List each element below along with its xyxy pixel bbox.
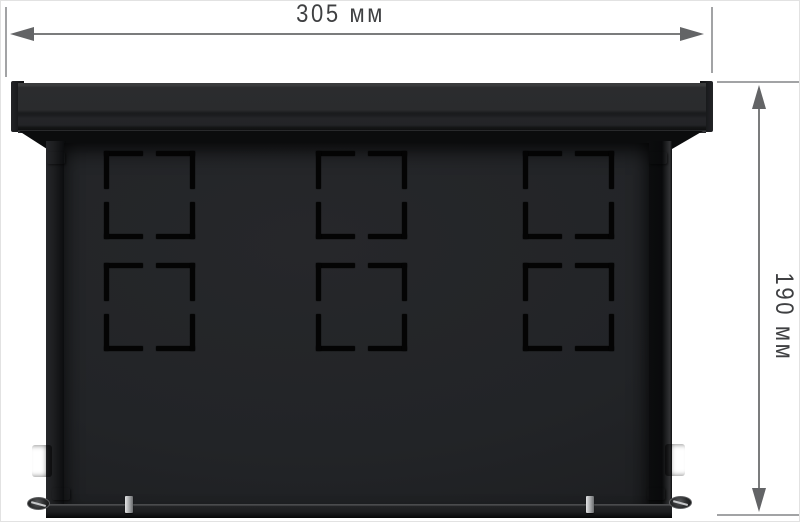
knockout-slot — [402, 151, 407, 189]
knockout-slot — [104, 151, 143, 156]
knockout-slot — [402, 202, 407, 240]
knockout-slot — [523, 314, 528, 352]
extension-line-top-right — [711, 7, 713, 73]
width-dimension-label: 305 мм — [241, 1, 441, 27]
knockout-slot — [523, 346, 562, 351]
lid-front-face — [18, 83, 706, 133]
side-screw-bottom-left — [52, 488, 70, 500]
knockout-slot — [523, 202, 528, 240]
knockout-slot — [104, 151, 109, 189]
extension-line-right-bottom — [717, 514, 800, 516]
knockout-slot — [402, 314, 407, 352]
height-dimension-text: 190 мм — [771, 273, 797, 362]
knockout-slot — [104, 263, 109, 301]
knockout-slot — [190, 314, 195, 352]
extension-line-right-top — [717, 81, 800, 83]
knockout-square — [523, 151, 614, 239]
knockout-slot — [190, 263, 195, 301]
knockout-slot — [104, 314, 109, 352]
height-arrowhead-top-icon — [752, 85, 766, 109]
height-dimension-label: 190 мм — [771, 266, 797, 367]
knockout-slot — [190, 151, 195, 189]
knockout-slot — [316, 234, 355, 239]
knockout-slot — [402, 263, 407, 301]
side-screw-bottom-right — [647, 488, 665, 500]
width-dimension-line — [15, 33, 699, 35]
knockout-slot — [316, 263, 321, 301]
knockout-slot — [316, 202, 321, 240]
knockout-slot — [104, 202, 109, 240]
knockout-square — [316, 151, 407, 239]
foot-screw-right — [669, 496, 692, 509]
knockout-square — [104, 151, 195, 239]
knockout-slot — [316, 151, 321, 189]
height-dimension-line — [758, 97, 760, 499]
side-screw-top-left — [47, 152, 65, 164]
knockout-slot — [316, 151, 355, 156]
knockout-slot — [523, 234, 562, 239]
knockout-square — [104, 263, 195, 351]
product-dimension-drawing: 305 мм 190 мм — [0, 0, 800, 522]
height-arrowhead-bottom-icon — [752, 488, 766, 512]
knockout-slot — [523, 263, 528, 301]
knockout-slot — [523, 263, 562, 268]
knockout-slot — [316, 314, 321, 352]
knockout-slot — [104, 346, 143, 351]
width-arrowhead-left-icon — [10, 27, 34, 41]
knockout-slot — [609, 202, 614, 240]
width-dimension-text: 305 мм — [297, 1, 386, 27]
knockout-slot — [609, 263, 614, 301]
knockout-slot — [104, 263, 143, 268]
extension-line-top-left — [5, 7, 7, 77]
knockout-slot — [609, 314, 614, 352]
knockout-slot — [523, 151, 562, 156]
cable-gland-left — [32, 445, 52, 477]
foot-screw-left — [27, 497, 50, 510]
cable-gland-right — [665, 444, 685, 476]
bottom-flange — [46, 504, 672, 518]
knockout-slot — [316, 346, 355, 351]
bottom-seam-screw-left — [125, 496, 133, 513]
knockout-square — [316, 263, 407, 351]
knockout-slot — [316, 263, 355, 268]
knockout-slot — [523, 151, 528, 189]
width-arrowhead-right-icon — [680, 27, 704, 41]
side-screw-top-right — [649, 152, 667, 164]
knockout-slot — [104, 234, 143, 239]
bottom-seam-screw-right — [586, 496, 594, 513]
knockout-slot — [609, 151, 614, 189]
knockout-square — [523, 263, 614, 351]
knockout-slot — [190, 202, 195, 240]
